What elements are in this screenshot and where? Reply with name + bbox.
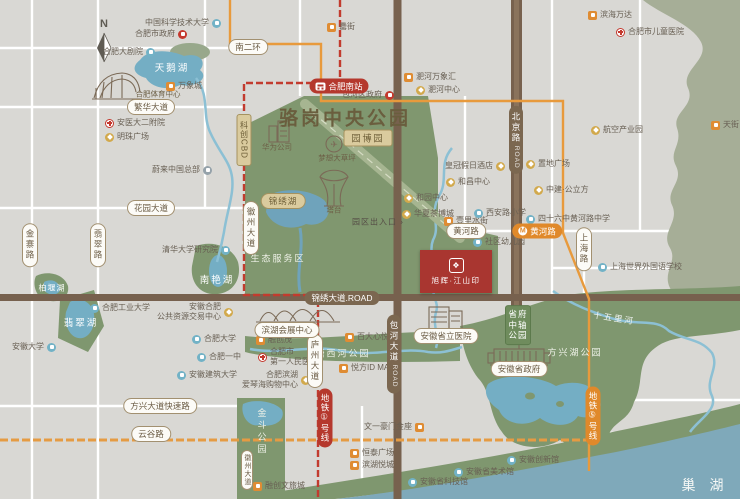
- mall-icon: [327, 23, 336, 32]
- school-icon: [408, 478, 417, 487]
- poi-label: 滨海万达: [600, 10, 632, 20]
- road-pill: 翡翠路: [90, 223, 106, 267]
- poi: 安徽合肥公共资源交易中心: [157, 302, 233, 322]
- road-pill: 金寨路: [22, 223, 38, 267]
- poi-label: 皇冠假日酒店: [445, 161, 493, 171]
- nio-logo-icon: [203, 166, 212, 175]
- mall-icon: [404, 73, 413, 82]
- poi-label: 明珠广场: [117, 132, 149, 142]
- road-pill-text: 锦绣大道.ROAD: [312, 293, 373, 303]
- poi: 皇冠假日酒店: [445, 161, 505, 171]
- poi-label: 滨湖悦城: [362, 460, 394, 470]
- compass-north-label: N: [100, 18, 108, 30]
- poi-label: 合肥市政府: [135, 29, 175, 39]
- map-label: 梦想大草坪: [318, 153, 356, 164]
- poi: 滨湖悦城: [350, 460, 394, 470]
- poi: 文一豪门金座: [364, 422, 424, 432]
- fangxing-lake-island: [556, 401, 564, 407]
- road-pill: 安徽省立医院: [413, 328, 478, 344]
- poi: 蔚来中国总部: [152, 165, 212, 175]
- metro-badge-label: 地铁⑤号线: [588, 392, 598, 441]
- poi-label: 淝河中心: [428, 85, 460, 95]
- poi-label: 安徽合肥公共资源交易中心: [157, 302, 221, 322]
- road-pill-major: 包河大道ROAD: [387, 315, 401, 394]
- poi-label: 恒泰广场: [362, 448, 394, 458]
- landmark-icon: [534, 186, 543, 195]
- poi-label: 文一豪门金座: [364, 422, 412, 432]
- mall-icon: [253, 482, 262, 491]
- road-pill-text: 北京路: [511, 112, 521, 144]
- mall-icon: [166, 82, 175, 91]
- poi-label: 蔚来中国总部: [152, 165, 200, 175]
- poi-label: 中国科学技术大学: [145, 18, 209, 28]
- poi-label: 安徽建筑大学: [189, 370, 237, 380]
- road-pill-subtext: ROAD: [513, 145, 520, 168]
- train-icon: [315, 82, 325, 90]
- map-label: 塔台: [327, 205, 342, 216]
- poi: 上海世界外国语学校: [598, 262, 682, 272]
- school-icon: [454, 468, 463, 477]
- poi: 安徽大学: [12, 342, 56, 352]
- poi-label: 合肥大学: [204, 334, 236, 344]
- poi: 罍街: [327, 22, 355, 32]
- poi: 中建·公立方: [534, 185, 589, 195]
- school-icon: [177, 371, 186, 380]
- poi: 西安路小学: [474, 208, 526, 218]
- poi: 安徽省美术馆: [454, 467, 514, 477]
- school-icon: [526, 215, 535, 224]
- poi-label: 置地广场: [538, 159, 570, 169]
- poi: 和昌中心: [446, 177, 490, 187]
- stadium-sketch: [92, 73, 142, 99]
- poi-label: 安徽省科技馆: [420, 477, 468, 487]
- mall-icon: [711, 121, 720, 130]
- hospital-icon: [616, 28, 625, 37]
- poi: 四十六中黄河路中学: [526, 214, 610, 224]
- poi: 淝河万象汇: [404, 72, 456, 82]
- area-badge: 科创CBD: [237, 114, 252, 166]
- road-pill: 安徽省政府: [491, 361, 548, 377]
- poi-label: 清华大学研究院: [162, 245, 218, 255]
- poi: 航空产业园: [591, 125, 643, 135]
- map-label: 骆岗中央公园: [279, 104, 411, 131]
- map-label: 方兴湖公园: [547, 346, 602, 359]
- metro-badge-label: 地铁①号线: [320, 394, 330, 443]
- road-pill: 方兴大道快速路: [123, 398, 197, 414]
- poi: 安徽创新馆: [507, 455, 559, 465]
- hospital-icon: [258, 353, 267, 362]
- landmark-icon: [402, 210, 411, 219]
- school-icon: [221, 246, 230, 255]
- map-label: 生态服务区: [250, 252, 305, 265]
- project-logo-icon: ❖: [449, 258, 464, 273]
- school-icon: [474, 209, 483, 218]
- area-badge: 省府中轴公园: [505, 305, 531, 345]
- project-name: 旭辉·江山印: [432, 275, 481, 286]
- road-pill-major: 北京路ROAD: [509, 106, 523, 174]
- school-icon: [212, 19, 221, 28]
- school-icon: [192, 335, 201, 344]
- map-label: 园区出入口 ›: [352, 217, 404, 228]
- road-pill: 繁华大道: [127, 99, 175, 115]
- poi-label: 合肥滨湖爱琴海购物中心: [242, 370, 298, 390]
- poi: 清华大学研究院: [162, 245, 230, 255]
- landmark-icon: [224, 308, 233, 317]
- road-pill: 云谷路: [131, 426, 171, 442]
- school-icon: [90, 304, 99, 313]
- poi: 合肥一中: [197, 352, 241, 362]
- map-label: 巢 湖: [682, 475, 729, 495]
- mall-icon: [345, 333, 354, 342]
- poi-label: 安徽创新馆: [519, 455, 559, 465]
- road-pill-major: 锦绣大道.ROAD: [305, 291, 380, 305]
- mall-icon: [350, 461, 359, 470]
- road-pill-subtext: ROAD: [391, 365, 398, 388]
- road-pill: 南二环: [228, 39, 268, 55]
- poi-label: 西安路小学: [486, 208, 526, 218]
- landmark-icon: [416, 86, 425, 95]
- poi: 和园中心: [404, 193, 448, 203]
- convention-center-sketch: [256, 310, 340, 323]
- landmark-icon: [591, 126, 600, 135]
- metro-badge: 地铁⑤号线: [586, 387, 601, 446]
- school-icon: [507, 456, 516, 465]
- poi-label: 合肥工业大学: [102, 303, 150, 313]
- road-pill: 徽州大道: [241, 450, 253, 490]
- poi-label: 安医大二附院: [117, 118, 165, 128]
- poi: 安徽省科技馆: [408, 477, 468, 487]
- road-pill: 上海路: [576, 227, 592, 271]
- poi-label: 和园中心: [416, 193, 448, 203]
- landmark-icon: [404, 194, 413, 203]
- map-label: 南艳湖: [200, 272, 235, 286]
- poi: 合肥滨湖爱琴海购物中心: [242, 370, 310, 390]
- poi: 合肥市政府: [135, 29, 187, 39]
- metro-icon: M: [518, 227, 527, 236]
- poi-label: 社区幼儿园: [485, 237, 525, 247]
- poi-label: 中建·公立方: [546, 185, 589, 195]
- poi: 置地广场: [526, 159, 570, 169]
- map-label: 翡翠湖: [64, 315, 99, 329]
- map-label: 塘西河公园: [315, 347, 370, 360]
- location-map: ✈ N 骆岗中央公园巢 湖天鹅湖翡翠湖南艳湖柏堰湖生态服务区金斗公园塘西河公园方…: [0, 0, 740, 499]
- poi: 恒泰广场: [350, 448, 394, 458]
- poi-label: 航空产业园: [603, 125, 643, 135]
- area-badge: 锦绣湖: [261, 193, 306, 209]
- poi-label: 和昌中心: [458, 177, 490, 187]
- poi: 万象城: [166, 81, 202, 91]
- poi-label: 安徽省美术馆: [466, 467, 514, 477]
- poi-label: 安徽大学: [12, 342, 44, 352]
- road-pill: 黄河路: [446, 223, 486, 239]
- landmark-icon: [496, 162, 505, 171]
- mall-icon: [415, 423, 424, 432]
- map-label: 华为公司: [262, 142, 292, 153]
- map-label: 天鹅湖: [155, 60, 190, 74]
- poi: 融创文旅城: [253, 481, 305, 491]
- metro-badge-label: 黄河路: [530, 225, 556, 237]
- school-icon: [47, 343, 56, 352]
- map-label: 柏堰湖: [39, 283, 66, 294]
- government-icon: [385, 91, 394, 100]
- landmark-icon: [526, 160, 535, 169]
- poi-label: 合肥一中: [209, 352, 241, 362]
- road-pill: 滨湖会展中心: [254, 322, 319, 338]
- school-icon: [197, 353, 206, 362]
- poi: 合肥市儿童医院: [616, 27, 684, 37]
- hospital-icon: [105, 119, 114, 128]
- metro-badge: M黄河路: [512, 224, 562, 239]
- landmark-icon: [105, 133, 114, 142]
- landmark-icon: [446, 178, 455, 187]
- poi: 安医大二附院: [105, 118, 165, 128]
- fangxing-lake-island: [525, 393, 535, 400]
- green-area-northeast: [643, 0, 740, 322]
- mall-icon: [339, 364, 348, 373]
- poi-label: 天街: [723, 120, 739, 130]
- metro-badge-label: 合肥南站: [328, 80, 362, 92]
- poi-label: 四十六中黄河路中学: [538, 214, 610, 224]
- poi-label: 上海世界外国语学校: [610, 262, 682, 272]
- map-label: 金斗公园: [256, 408, 269, 456]
- poi: 合肥大学: [192, 334, 236, 344]
- poi: 滨海万达: [588, 10, 632, 20]
- road-pill: 花园大道: [127, 200, 175, 216]
- poi-label: 融创文旅城: [265, 481, 305, 491]
- poi-label: 合肥大剧院: [103, 47, 143, 57]
- road-pill: 庐州大道: [307, 334, 323, 388]
- school-icon: [146, 48, 155, 57]
- school-icon: [598, 263, 607, 272]
- road-pill-text: 包河大道: [389, 321, 399, 363]
- metro-badge: 合肥南站: [309, 79, 368, 94]
- road-pill: 徽州大道: [243, 201, 259, 255]
- plane-icon-glyph: ✈: [330, 140, 338, 150]
- poi: 合肥工业大学: [90, 303, 150, 313]
- poi-label: 罍街: [339, 22, 355, 32]
- poi: 淝河中心: [416, 85, 460, 95]
- poi: 天街: [711, 120, 739, 130]
- poi-label: 淝河万象汇: [416, 72, 456, 82]
- area-badge: 园博园: [343, 130, 392, 147]
- metro-badge: 地铁①号线: [318, 389, 333, 448]
- mall-icon: [350, 449, 359, 458]
- government-icon: [178, 30, 187, 39]
- poi: 安徽建筑大学: [177, 370, 237, 380]
- project-marker: ❖ 旭辉·江山印: [420, 250, 492, 293]
- poi: 合肥大剧院: [103, 47, 155, 57]
- poi-label: 万象城: [178, 81, 202, 91]
- poi: 中国科学技术大学: [145, 18, 221, 28]
- poi: 明珠广场: [105, 132, 149, 142]
- mall-icon: [588, 11, 597, 20]
- poi-label: 合肥市儿童医院: [628, 27, 684, 37]
